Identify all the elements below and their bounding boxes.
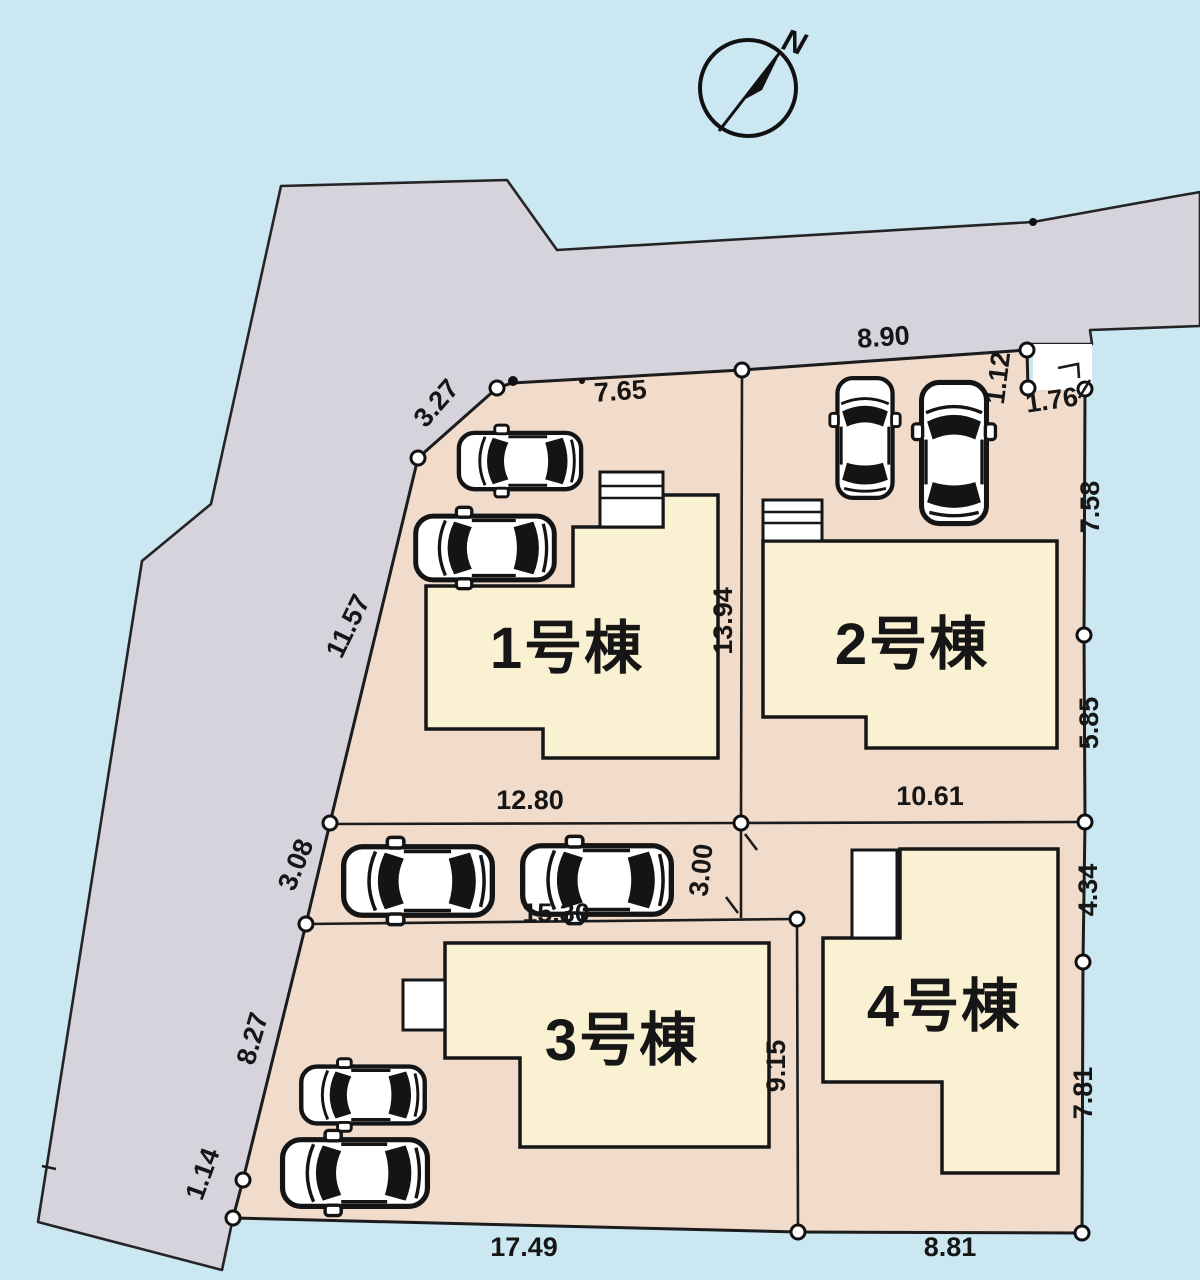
car-icon [344,837,493,924]
building-1-porch [600,472,663,527]
car-icon [301,1059,424,1132]
dim-lot3-east: 9.15 [761,1040,791,1093]
building-4-label: 4号棟 [867,974,1021,1039]
building-2-porch [763,500,822,541]
dim-lot2-notch-east: 1.12 [980,350,1016,406]
car-icon [830,378,900,498]
dim-lot2-east-upper: 7.58 [1075,481,1105,534]
building-2-label: 2号棟 [835,612,989,677]
car-icon [459,425,581,497]
car-icon [416,507,555,588]
building-4-annex [852,850,897,938]
building-1-label: 1号棟 [490,616,644,681]
dim-lot1-east: 13.94 [708,587,738,655]
dim-lot2-south: 10.61 [896,781,964,811]
site-plan-page: N 3.27 7.65 11.57 13.94 12.80 [0,0,1200,1280]
car-icon [913,382,996,523]
dim-lot3-south: 17.49 [490,1232,558,1262]
site-plan-drawing: N 3.27 7.65 11.57 13.94 12.80 [0,0,1200,1280]
dim-lot4-east-lower: 7.81 [1068,1067,1098,1120]
dim-lot3-north: 15.30 [522,898,590,928]
dim-lot1-north: 7.65 [593,374,648,408]
dim-lot1-south: 12.80 [496,785,564,815]
dim-lot2-north: 8.90 [856,320,911,354]
dim-lot4-south: 8.81 [924,1232,977,1262]
building-3-label: 3号棟 [545,1008,699,1073]
dim-lot2-east-lower: 5.85 [1074,697,1104,750]
lot3-lot4-boundary [797,919,798,1232]
dim-lot4-west: 3.00 [683,842,718,897]
lot1-lot2-boundary [741,370,742,823]
car-icon [283,1130,428,1215]
building-3-annex [403,980,445,1030]
dim-lot4-east-upper: 4.34 [1073,864,1103,917]
